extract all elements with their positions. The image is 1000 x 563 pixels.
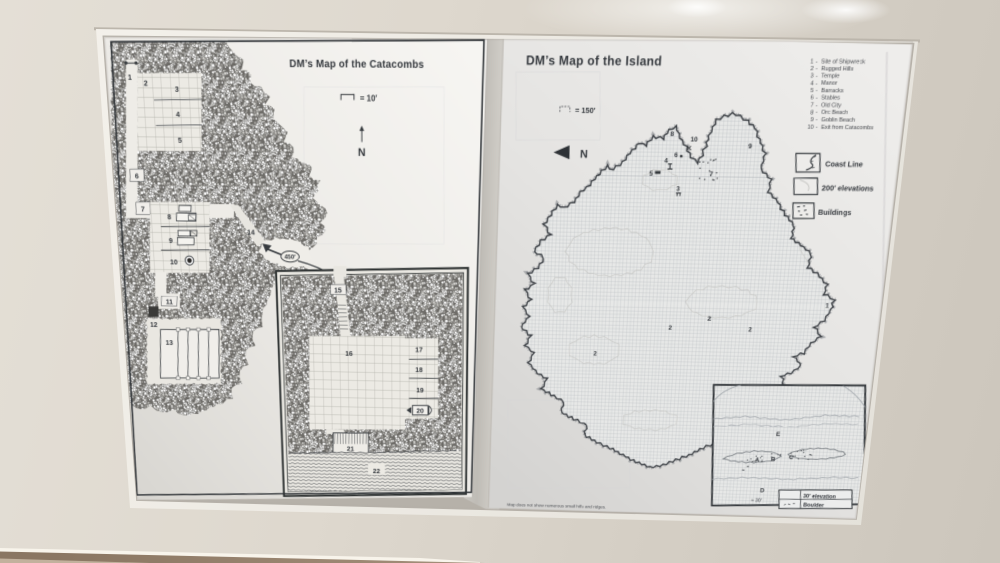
svg-text:200′ elevations: 200′ elevations xyxy=(821,183,874,193)
svg-text:Orc Beach: Orc Beach xyxy=(821,110,848,117)
svg-text:= 150′: = 150′ xyxy=(575,106,596,116)
svg-text:Barracks: Barracks xyxy=(821,88,844,95)
svg-text:5: 5 xyxy=(649,170,653,177)
svg-text:Old City: Old City xyxy=(821,103,842,109)
svg-text:5: 5 xyxy=(178,136,182,145)
svg-text:Exit from Catacombs: Exit from Catacombs xyxy=(821,125,874,132)
svg-text:14: 14 xyxy=(247,228,256,237)
svg-text:11: 11 xyxy=(166,297,174,305)
svg-text:9: 9 xyxy=(169,236,173,245)
svg-text:N: N xyxy=(358,147,366,159)
svg-text:450′: 450′ xyxy=(284,254,296,261)
svg-text:Boulder: Boulder xyxy=(803,502,825,509)
svg-text:5: 5 xyxy=(810,88,814,94)
svg-text:Temple: Temple xyxy=(821,73,840,80)
svg-text:1: 1 xyxy=(810,59,814,65)
svg-text:8: 8 xyxy=(810,110,814,116)
svg-text:7: 7 xyxy=(141,205,145,214)
svg-text:21: 21 xyxy=(347,445,354,453)
svg-text:= 10′: = 10′ xyxy=(360,94,377,103)
svg-text:Rugged Hills: Rugged Hills xyxy=(821,66,854,73)
svg-text:Stables: Stables xyxy=(821,95,841,101)
svg-text:2: 2 xyxy=(810,66,814,72)
svg-text:1: 1 xyxy=(128,73,133,82)
svg-text:8: 8 xyxy=(167,213,171,222)
svg-text:Site of Shipwreck: Site of Shipwreck xyxy=(821,59,866,66)
svg-text:2: 2 xyxy=(593,351,597,358)
svg-text:3: 3 xyxy=(175,85,179,94)
svg-text:18: 18 xyxy=(415,366,423,374)
svg-text:Buildings: Buildings xyxy=(818,208,852,217)
svg-text:10: 10 xyxy=(170,258,178,267)
svg-text:Coast Line: Coast Line xyxy=(825,159,864,169)
svg-text:2: 2 xyxy=(144,79,148,88)
svg-text:19: 19 xyxy=(416,386,423,394)
svg-text:16: 16 xyxy=(345,350,353,358)
svg-text:≈ 30′: ≈ 30′ xyxy=(751,498,762,503)
svg-text:DM’s Map of the Island: DM’s Map of the Island xyxy=(526,53,663,69)
svg-text:9: 9 xyxy=(810,117,814,123)
svg-text:C: C xyxy=(789,455,794,461)
svg-text:15: 15 xyxy=(334,286,342,295)
svg-text:D: D xyxy=(760,488,765,494)
svg-text:10: 10 xyxy=(690,136,698,143)
svg-text:6: 6 xyxy=(810,95,814,101)
svg-text:N: N xyxy=(580,148,588,160)
svg-text:Manor: Manor xyxy=(821,81,838,87)
svg-text:A: A xyxy=(755,457,760,463)
svg-text:7: 7 xyxy=(810,103,814,109)
svg-text:6: 6 xyxy=(135,172,139,181)
svg-text:DM’s Map of the Catacombs: DM’s Map of the Catacombs xyxy=(289,59,424,71)
svg-text:30′ elevation: 30′ elevation xyxy=(803,493,837,500)
svg-text:12: 12 xyxy=(150,320,158,328)
svg-text:17: 17 xyxy=(415,346,423,354)
svg-text:10: 10 xyxy=(807,125,814,131)
svg-text:20: 20 xyxy=(416,407,423,415)
svg-text:B: B xyxy=(771,457,776,463)
svg-text:22: 22 xyxy=(373,467,380,475)
svg-text:13: 13 xyxy=(165,339,173,347)
svg-text:3: 3 xyxy=(810,73,814,79)
svg-text:Goblin Beach: Goblin Beach xyxy=(821,117,855,124)
